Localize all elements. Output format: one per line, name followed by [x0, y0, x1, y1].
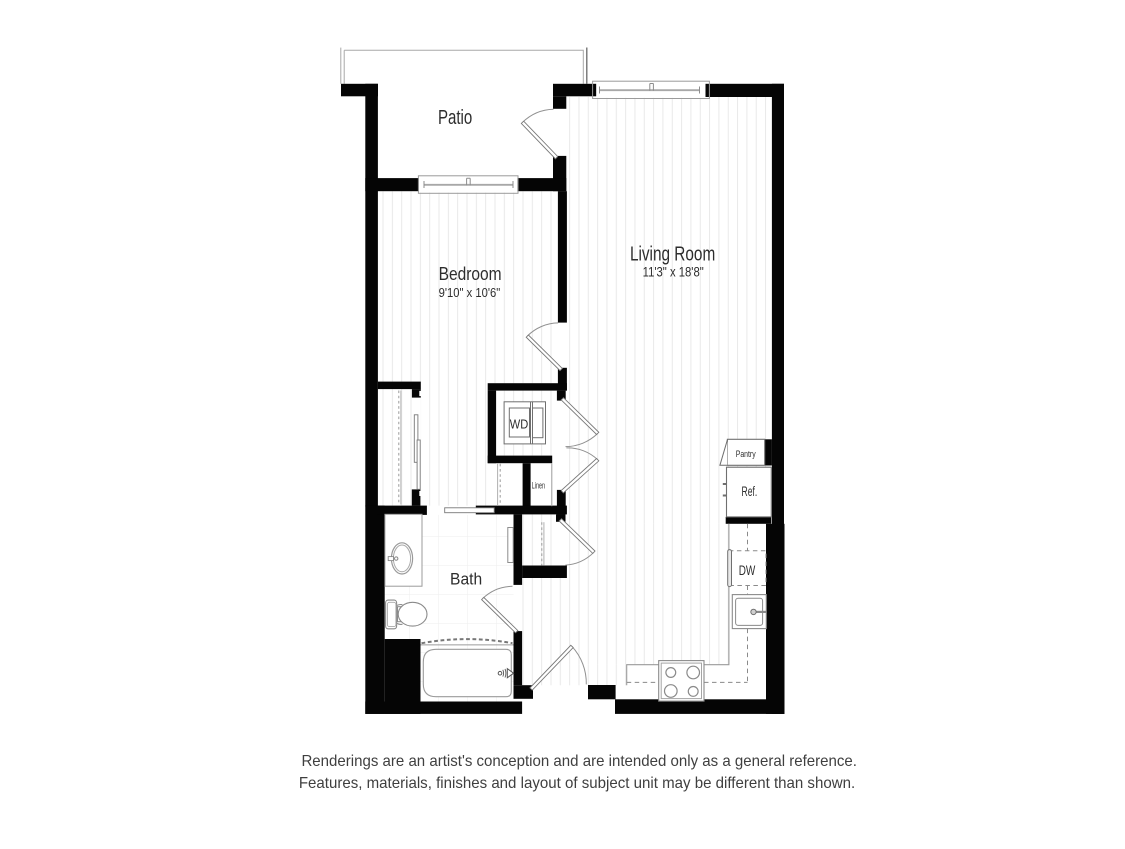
- svg-text:DW: DW: [739, 563, 756, 578]
- svg-text:Features, materials, finishes: Features, materials, finishes and layout…: [299, 775, 855, 792]
- svg-text:Bath: Bath: [450, 570, 482, 588]
- svg-text:WD: WD: [510, 417, 529, 431]
- svg-text:9'10" x 10'6": 9'10" x 10'6": [439, 285, 501, 300]
- svg-text:Bedroom: Bedroom: [439, 263, 502, 284]
- svg-text:Linen: Linen: [532, 481, 545, 492]
- svg-text:Pantry: Pantry: [736, 449, 756, 460]
- svg-text:Living Room: Living Room: [630, 244, 715, 266]
- svg-text:Ref.: Ref.: [742, 484, 758, 499]
- svg-text:11'3" x 18'8": 11'3" x 18'8": [643, 264, 704, 279]
- svg-text:Patio: Patio: [438, 107, 472, 129]
- svg-text:Renderings are an artist's con: Renderings are an artist's conception an…: [301, 753, 857, 770]
